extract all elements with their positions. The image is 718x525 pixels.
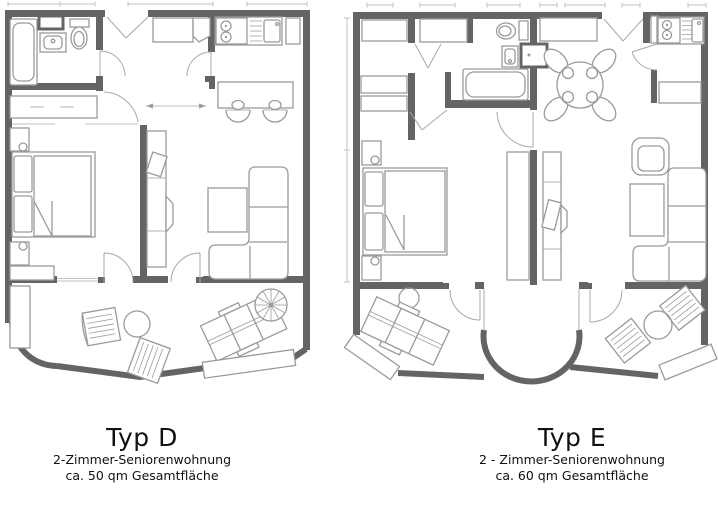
dimension-line-left-e — [344, 18, 350, 282]
sideboard — [10, 96, 97, 118]
wardrobe — [507, 152, 529, 280]
outdoor-table — [124, 311, 150, 337]
nightstand — [10, 242, 29, 265]
bathroom-door-panel — [521, 44, 547, 67]
planter — [659, 344, 717, 380]
bathtub — [463, 69, 528, 100]
toilet — [497, 21, 529, 40]
floorplan-canvas — [0, 0, 718, 415]
bay-window — [484, 289, 579, 330]
floor-plan-typ-e — [344, 3, 717, 382]
kitchen-sideboard — [659, 82, 701, 103]
entry-wardrobe — [153, 18, 210, 42]
dimension-line-top-d — [8, 2, 307, 7]
parasol-icon — [255, 289, 287, 321]
kitchenette-typ-e — [651, 16, 704, 103]
nightstand — [362, 256, 381, 280]
hall-cabinet — [540, 18, 597, 41]
outdoor-table — [644, 311, 672, 339]
living-room-typ-d — [146, 131, 288, 279]
tv-sideboard — [542, 152, 567, 280]
toilet — [70, 19, 89, 49]
plan-area-typ-d: ca. 50 qm Gesamtfläche — [53, 468, 231, 484]
dimension-line-top-e — [367, 3, 706, 8]
coffee-table — [208, 188, 247, 232]
balcony-window-box — [10, 286, 30, 348]
floor-plan-typ-d — [5, 2, 310, 384]
living-room-typ-e — [542, 138, 706, 281]
plan-title-typ-e: Typ E — [479, 424, 665, 452]
dining-set — [540, 45, 621, 126]
dresser — [10, 266, 54, 280]
washbasin — [502, 46, 518, 67]
double-bed — [12, 152, 95, 237]
floor-plan-sheet: Typ D 2-Zimmer-Seniorenwohnung ca. 50 qm… — [0, 0, 718, 525]
double-bed — [363, 168, 447, 255]
plan-subtitle-typ-d: 2-Zimmer-Seniorenwohnung — [53, 452, 231, 468]
armchair — [632, 138, 669, 175]
plan-subtitle-typ-e: 2 - Zimmer-Seniorenwohnung — [479, 452, 665, 468]
washbasin — [40, 33, 66, 52]
bathtub — [10, 19, 37, 85]
bathroom-typ-d — [10, 16, 89, 85]
nightstand — [362, 141, 381, 165]
plan-caption-typ-d: Typ D 2-Zimmer-Seniorenwohnung ca. 50 qm… — [53, 424, 231, 483]
bar-stool — [226, 110, 250, 122]
nightstand — [10, 128, 29, 151]
tv-sideboard — [146, 131, 173, 267]
balcony-right-typ-e — [605, 286, 717, 380]
dining-table — [557, 62, 603, 108]
plan-area-typ-e: ca. 60 qm Gesamtfläche — [479, 468, 665, 484]
bedroom-typ-e — [362, 141, 529, 280]
coffee-table — [630, 184, 664, 236]
bar-counter — [218, 82, 293, 122]
plan-title-typ-d: Typ D — [53, 424, 231, 452]
bar-stool — [263, 110, 287, 122]
kitchenette-typ-d — [215, 17, 300, 45]
outdoor-chair — [660, 286, 705, 331]
plan-caption-typ-e: Typ E 2 - Zimmer-Seniorenwohnung ca. 60 … — [479, 424, 665, 483]
balcony-left-typ-e — [344, 288, 451, 380]
outdoor-chair — [80, 307, 120, 346]
mirror-cabinet — [39, 16, 63, 29]
